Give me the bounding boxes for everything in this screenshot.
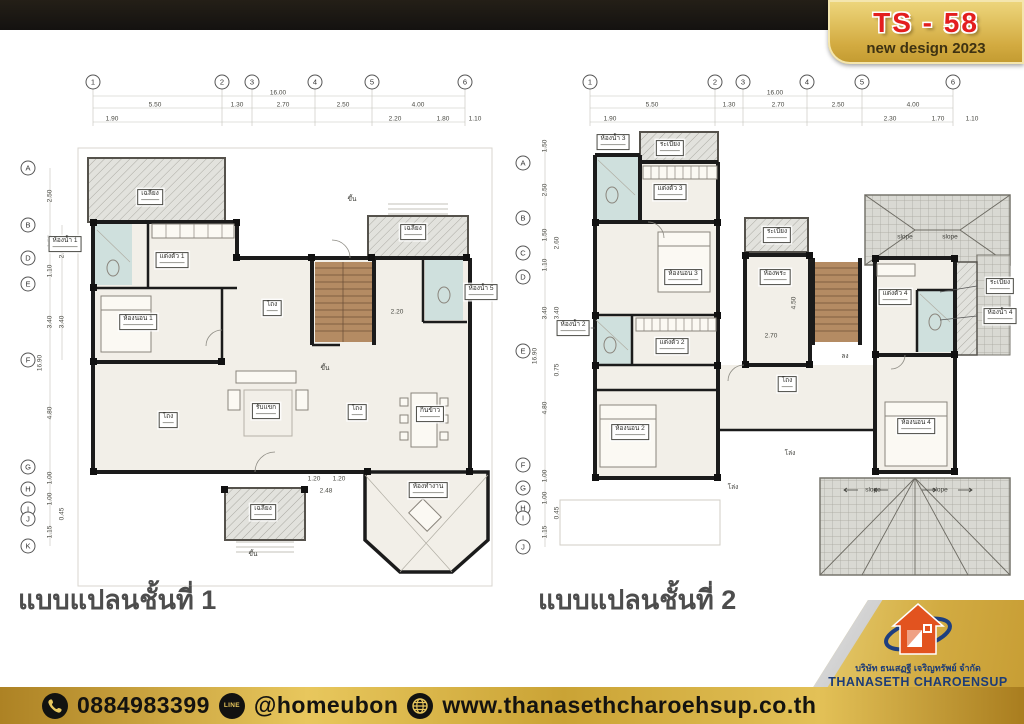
- room-label: ห้องนอน 4: [897, 418, 935, 434]
- room-name: เฉลียง: [254, 506, 272, 513]
- plan1-caption: แบบแปลนชั้นที่ 1: [18, 578, 216, 621]
- plan-note: slope: [865, 487, 881, 494]
- room-label: ระเบียง: [763, 227, 791, 243]
- room-name: เฉลียง: [141, 191, 159, 198]
- room-name: ห้องพระ: [764, 271, 787, 278]
- dimension-text-vertical: 1.50: [542, 140, 549, 153]
- dimension-text-vertical: 3.40: [542, 307, 549, 320]
- grid-row-bubble: J: [21, 512, 36, 527]
- room-elevation-line: [267, 310, 278, 313]
- room-label: แต่งตัว 3: [654, 184, 687, 200]
- room-label: ห้องน้ำ 1: [49, 236, 82, 252]
- room-label: ห้องน้ำ 5: [465, 284, 498, 300]
- room-elevation-line: [764, 279, 787, 282]
- grid-row-bubble: A: [516, 156, 531, 171]
- room-elevation-line: [615, 434, 645, 437]
- line-id: @homeubon: [254, 692, 398, 719]
- dimension-text: 2.70: [772, 102, 785, 109]
- room-label: โถง: [348, 404, 367, 420]
- dimension-text: 1.20: [333, 476, 346, 483]
- dimension-text: 16.00: [767, 90, 783, 97]
- dimension-text-vertical: 16.90: [532, 348, 539, 364]
- dimension-text: 1.90: [604, 116, 617, 123]
- dimension-text: 2.30: [884, 116, 897, 123]
- room-elevation-line: [883, 299, 908, 302]
- grid-column-bubble: 2: [708, 75, 723, 90]
- room-name: ห้องน้ำ 2: [561, 322, 586, 329]
- dimension-text: 4.00: [412, 102, 425, 109]
- dimension-text: 1.10: [469, 116, 482, 123]
- room-name: ห้องน้ำ 1: [53, 238, 78, 245]
- plan-note: โล่ง: [785, 448, 796, 458]
- room-name: ห้องน้ำ 4: [988, 310, 1013, 317]
- grid-row-bubble: F: [21, 353, 36, 368]
- grid-row-bubble: J: [516, 540, 531, 555]
- room-elevation-line: [561, 330, 586, 333]
- room-label: แต่งตัว 1: [156, 252, 189, 268]
- dimension-text-vertical: 1.10: [542, 259, 549, 272]
- website-url: www.thanasethcharoehsup.co.th: [442, 692, 816, 719]
- room-label: กินข้าว: [416, 406, 444, 422]
- room-elevation-line: [782, 386, 793, 389]
- grid-row-bubble: C: [516, 246, 531, 261]
- grid-column-bubble: 3: [736, 75, 751, 90]
- room-elevation-line: [990, 288, 1010, 291]
- plan-note: ขึ้น: [321, 363, 330, 373]
- dimension-text-vertical: 1.15: [47, 526, 54, 539]
- room-elevation-line: [160, 262, 185, 265]
- room-name: ระเบียง: [660, 142, 680, 149]
- grid-row-bubble: D: [21, 251, 36, 266]
- room-name: แต่งตัว 3: [658, 186, 683, 193]
- globe-icon: [407, 693, 433, 719]
- grid-row-bubble: B: [516, 211, 531, 226]
- grid-column-bubble: 6: [946, 75, 961, 90]
- plan-note: ลง: [841, 351, 848, 361]
- dimension-text-vertical: 4.80: [542, 402, 549, 415]
- dimension-text: 16.00: [270, 90, 286, 97]
- room-label: ระเบียง: [986, 278, 1014, 294]
- room-name: ห้องน้ำ 5: [469, 286, 494, 293]
- room-elevation-line: [352, 414, 363, 417]
- dimension-text-vertical: 1.00: [47, 472, 54, 485]
- room-name: กินข้าว: [420, 408, 440, 415]
- room-name: ห้องนอน 3: [668, 271, 698, 278]
- dimension-text-vertical: 3.40: [59, 316, 66, 329]
- line-icon: LINE: [219, 693, 245, 719]
- room-elevation-line: [404, 234, 422, 237]
- room-label: ห้องน้ำ 3: [597, 134, 630, 150]
- room-label: โถง: [263, 300, 282, 316]
- room-name: โถง: [352, 406, 363, 413]
- dimension-text: 2.70: [277, 102, 290, 109]
- room-label: รับแขก: [252, 403, 280, 419]
- room-elevation-line: [668, 279, 698, 282]
- dimension-text-vertical: 2.60: [554, 237, 561, 250]
- dimension-text-vertical: 1.00: [542, 492, 549, 505]
- plan-note: slope: [942, 234, 958, 241]
- room-label: เฉลียง: [250, 504, 276, 520]
- room-elevation-line: [660, 348, 685, 351]
- dimension-text: 1.70: [932, 116, 945, 123]
- room-elevation-line: [660, 150, 680, 153]
- grid-row-bubble: G: [516, 481, 531, 496]
- dimension-text-vertical: 4.50: [791, 297, 798, 310]
- grid-row-bubble: I: [516, 511, 531, 526]
- grid-column-bubble: 5: [365, 75, 380, 90]
- dimension-text: 1.90: [106, 116, 119, 123]
- dimension-text-vertical: 1.00: [542, 470, 549, 483]
- room-elevation-line: [901, 428, 931, 431]
- room-label: ห้องนอน 2: [611, 424, 649, 440]
- dimension-text: 1.30: [723, 102, 736, 109]
- room-elevation-line: [469, 294, 494, 297]
- room-label: ระเบียง: [656, 140, 684, 156]
- company-name-thai: บริษัท ธนเสฏฐี เจริญทรัพย์ จำกัด: [855, 661, 981, 675]
- room-label: ห้องนอน 1: [119, 314, 157, 330]
- room-elevation-line: [163, 422, 174, 425]
- room-label: ห้องพระ: [760, 269, 791, 285]
- phone-number: 0884983399: [77, 692, 210, 719]
- room-name: โถง: [163, 414, 174, 421]
- room-label: ห้องทำงาน: [409, 482, 448, 498]
- room-elevation-line: [256, 413, 276, 416]
- dimension-text-vertical: 1.00: [47, 493, 54, 506]
- dimension-text-vertical: 1.50: [542, 229, 549, 242]
- room-elevation-line: [420, 416, 440, 419]
- dimension-text: 2.20: [389, 116, 402, 123]
- room-elevation-line: [601, 144, 626, 147]
- room-elevation-line: [123, 324, 153, 327]
- room-elevation-line: [658, 194, 683, 197]
- dimension-text-vertical: 2.50: [47, 190, 54, 203]
- grid-column-bubble: 1: [86, 75, 101, 90]
- dimension-text: 2.48: [320, 488, 333, 495]
- dimension-text-vertical: 0.75: [554, 364, 561, 377]
- contact-bar: 0884983399 LINE @homeubon www.thanasethc…: [0, 687, 1024, 724]
- plan-note: slope: [897, 234, 913, 241]
- room-name: แต่งตัว 1: [160, 254, 185, 261]
- room-elevation-line: [254, 514, 272, 517]
- room-name: ห้องนอน 4: [901, 420, 931, 427]
- grid-row-bubble: H: [21, 482, 36, 497]
- room-name: ห้องนอน 1: [123, 316, 153, 323]
- phone-icon: [42, 693, 68, 719]
- grid-column-bubble: 6: [458, 75, 473, 90]
- dimension-text: 1.30: [231, 102, 244, 109]
- room-name: โถง: [267, 302, 278, 309]
- dimension-text: 4.00: [907, 102, 920, 109]
- room-label: ห้องน้ำ 2: [557, 320, 590, 336]
- dimension-text-vertical: 1.15: [542, 526, 549, 539]
- room-name: ระเบียง: [990, 280, 1010, 287]
- room-label: เฉลียง: [137, 189, 163, 205]
- dimension-text: 2.50: [832, 102, 845, 109]
- dimension-text-vertical: 3.40: [554, 307, 561, 320]
- grid-column-bubble: 1: [583, 75, 598, 90]
- company-logo-icon: [881, 602, 955, 660]
- plan-note: โล่ง: [728, 482, 739, 492]
- grid-row-bubble: F: [516, 458, 531, 473]
- grid-row-bubble: E: [21, 277, 36, 292]
- plan-note: ขึ้น: [348, 194, 357, 204]
- room-label: ห้องนอน 3: [664, 269, 702, 285]
- line-icon-text: LINE: [224, 702, 240, 709]
- flyer-page: TS - 58 new design 2023: [0, 0, 1024, 724]
- grid-column-bubble: 5: [855, 75, 870, 90]
- room-label: โถง: [159, 412, 178, 428]
- grid-column-bubble: 2: [215, 75, 230, 90]
- grid-row-bubble: A: [21, 161, 36, 176]
- room-elevation-line: [988, 318, 1013, 321]
- plan2-caption: แบบแปลนชั้นที่ 2: [538, 578, 736, 621]
- room-elevation-line: [413, 492, 444, 495]
- room-name: ห้องทำงาน: [413, 484, 444, 491]
- room-name: รับแขก: [256, 405, 276, 412]
- grid-row-bubble: D: [516, 270, 531, 285]
- grid-row-bubble: K: [21, 539, 36, 554]
- grid-column-bubble: 4: [308, 75, 323, 90]
- room-label: เฉลียง: [400, 224, 426, 240]
- dimension-text-vertical: 0.45: [554, 507, 561, 520]
- room-elevation-line: [767, 237, 787, 240]
- room-name: เฉลียง: [404, 226, 422, 233]
- dimension-text: 1.80: [437, 116, 450, 123]
- dimension-text: 5.50: [646, 102, 659, 109]
- dimension-text-vertical: 1.10: [47, 265, 54, 278]
- plan-note: ขึ้น: [249, 549, 258, 559]
- plan-note: slope: [932, 487, 948, 494]
- room-label: โถง: [778, 376, 797, 392]
- grid-column-bubble: 4: [800, 75, 815, 90]
- dimension-text-vertical: 2.50: [542, 184, 549, 197]
- room-name: แต่งตัว 2: [660, 340, 685, 347]
- room-elevation-line: [53, 246, 78, 249]
- plan2-geometry: [545, 88, 1010, 575]
- dimension-text-vertical: 0.45: [59, 508, 66, 521]
- dimension-text: 1.10: [966, 116, 979, 123]
- room-name: ระเบียง: [767, 229, 787, 236]
- grid-row-bubble: G: [21, 460, 36, 475]
- dimension-text: 2.50: [337, 102, 350, 109]
- grid-row-bubble: E: [516, 344, 531, 359]
- room-label: แต่งตัว 4: [879, 289, 912, 305]
- room-label: ห้องน้ำ 4: [984, 308, 1017, 324]
- dimension-text-vertical: 4.80: [47, 407, 54, 420]
- dimension-text: 2.70: [765, 333, 778, 340]
- room-name: ห้องนอน 2: [615, 426, 645, 433]
- room-name: แต่งตัว 4: [883, 291, 908, 298]
- dimension-text: 1.20: [308, 476, 321, 483]
- room-name: ห้องน้ำ 3: [601, 136, 626, 143]
- room-name: โถง: [782, 378, 793, 385]
- dimension-text: 2.20: [391, 309, 404, 316]
- room-label: แต่งตัว 2: [656, 338, 689, 354]
- grid-row-bubble: B: [21, 218, 36, 233]
- room-elevation-line: [141, 199, 159, 202]
- dimension-text-vertical: 16.90: [37, 355, 44, 371]
- grid-column-bubble: 3: [245, 75, 260, 90]
- dimension-text-vertical: 3.40: [47, 316, 54, 329]
- dimension-text: 5.50: [149, 102, 162, 109]
